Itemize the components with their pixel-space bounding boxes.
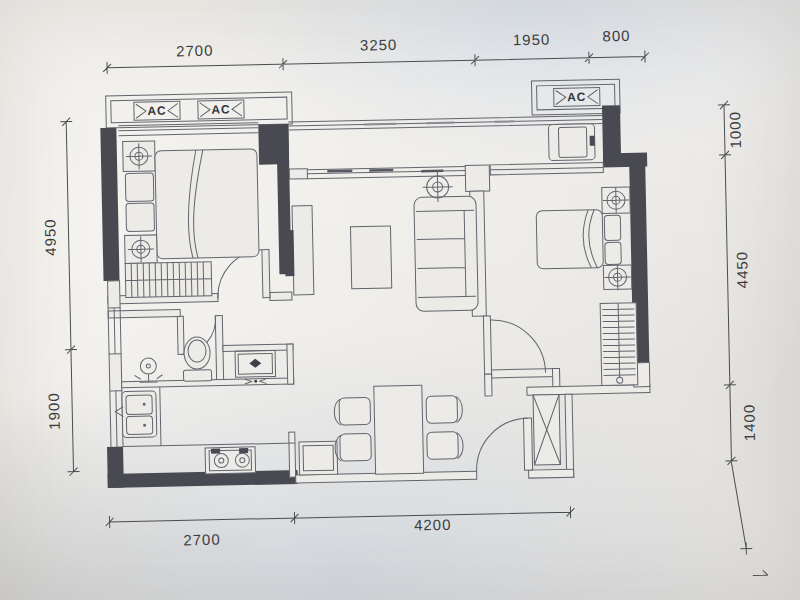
toilet-icon [183, 337, 212, 382]
dim-label: 1000 [726, 111, 744, 149]
floor-plan-photo: AC AC AC [0, 0, 800, 600]
bed-icon [155, 149, 259, 259]
wall [529, 469, 574, 478]
pillow [604, 215, 621, 240]
dim-label: 1950 [513, 31, 551, 49]
dining-table-icon [374, 385, 424, 474]
shaft-x [533, 394, 560, 465]
tv-cabinet [292, 206, 314, 295]
door-arc [490, 319, 545, 374]
door-leaf [483, 316, 491, 374]
wall [527, 385, 650, 396]
dining-chair [426, 396, 463, 424]
pillow [126, 203, 155, 232]
wall [485, 374, 492, 396]
wall [270, 292, 292, 300]
dining-chair [334, 397, 371, 425]
sofa-icon [414, 196, 478, 311]
shower-icon [134, 358, 162, 383]
room-bedroom-2 [536, 187, 638, 387]
pillow [125, 173, 154, 202]
wall [289, 169, 307, 179]
ac-unit-2: AC [198, 100, 244, 119]
sink-icon [115, 391, 157, 438]
drying-rack-icon [600, 303, 638, 386]
window [110, 391, 123, 447]
wall [100, 128, 119, 281]
room-living [283, 171, 478, 314]
ac-unit-3: AC [554, 88, 600, 107]
dim-label: 4200 [414, 516, 452, 534]
entry-door-leaf [524, 418, 533, 470]
room-bedroom-1 [123, 139, 260, 298]
wall [109, 354, 122, 391]
dim-label: 800 [602, 27, 630, 45]
dim-label: 2700 [183, 531, 221, 549]
ac-unit-label: AC [567, 90, 587, 104]
wall [565, 394, 574, 477]
floor-plan-drawing: AC AC AC [0, 0, 800, 600]
wall [108, 470, 298, 488]
wall [108, 309, 180, 318]
wall [465, 165, 490, 191]
tv-icon [285, 230, 295, 276]
stove-icon [205, 447, 256, 474]
room-kitchen [115, 383, 338, 479]
dining-chair [427, 432, 464, 460]
dim-label: 2700 [176, 42, 214, 60]
wall [108, 281, 121, 308]
dimension-right: 1000 4450 1400 [718, 100, 768, 576]
wall [491, 368, 559, 377]
pillow [605, 242, 621, 264]
dim-label: 4950 [41, 218, 59, 256]
dimension-left: 4950 1900 [39, 118, 79, 477]
wall [287, 344, 294, 384]
washing-machine-icon [548, 124, 595, 161]
dim-label: 1900 [45, 392, 63, 430]
ac-unit-label: AC [147, 104, 167, 118]
dim-label: 1400 [740, 404, 758, 442]
entry-door-arc [476, 418, 529, 471]
ac-platform-top-left: AC AC [106, 92, 293, 128]
ac-unit-1: AC [134, 101, 180, 120]
dim-label: 4450 [733, 251, 751, 289]
wall [289, 432, 296, 477]
dimension-bottom: 2700 4200 [105, 506, 575, 550]
fridge-icon [299, 441, 338, 475]
dining-chair [335, 433, 372, 461]
wall [215, 316, 223, 382]
door-leaf [177, 316, 184, 354]
room-dining [334, 385, 464, 476]
ac-unit-label: AC [211, 102, 231, 116]
dim-label: 3250 [360, 36, 398, 54]
dimension-top: 2700 3250 1950 800 [102, 27, 649, 74]
wardrobe-hatch [125, 262, 212, 298]
door-leaf [262, 250, 270, 298]
coffee-table [350, 226, 391, 289]
